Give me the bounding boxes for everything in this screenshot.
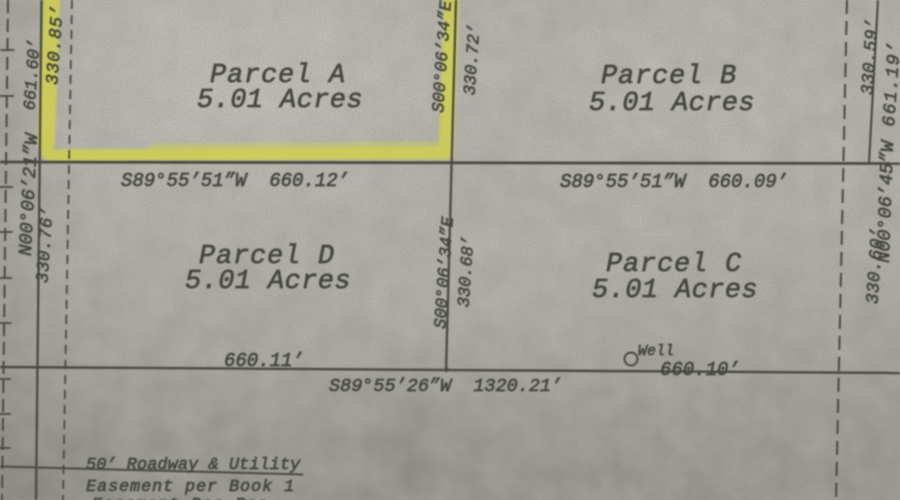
svg-text:5.01 Acres: 5.01 Acres: [592, 276, 758, 306]
svg-text:Easement Dec Rec: Easement Dec Rec: [92, 496, 268, 500]
svg-text:Well: Well: [638, 343, 674, 360]
svg-text:Easement per Book 1: Easement per Book 1: [86, 478, 295, 497]
svg-text:50’ Roadway & Utility: 50’ Roadway & Utility: [86, 456, 301, 475]
svg-text:S89°55’51”W 660.12’: S89°55’51”W 660.12’: [121, 170, 349, 192]
svg-text:S89°55’51”W 660.09’: S89°55’51”W 660.09’: [560, 171, 788, 193]
svg-text:660.11’: 660.11’: [224, 350, 304, 372]
svg-text:5.01 Acres: 5.01 Acres: [589, 89, 755, 119]
svg-text:Parcel B: Parcel B: [601, 62, 737, 92]
svg-text:5.01 Acres: 5.01 Acres: [197, 86, 363, 116]
svg-text:5.01 Acres: 5.01 Acres: [185, 267, 351, 297]
svg-text:S89°55’26”W 1320.21’: S89°55’26”W 1320.21’: [329, 376, 562, 397]
svg-text:660.10’: 660.10’: [660, 359, 740, 381]
